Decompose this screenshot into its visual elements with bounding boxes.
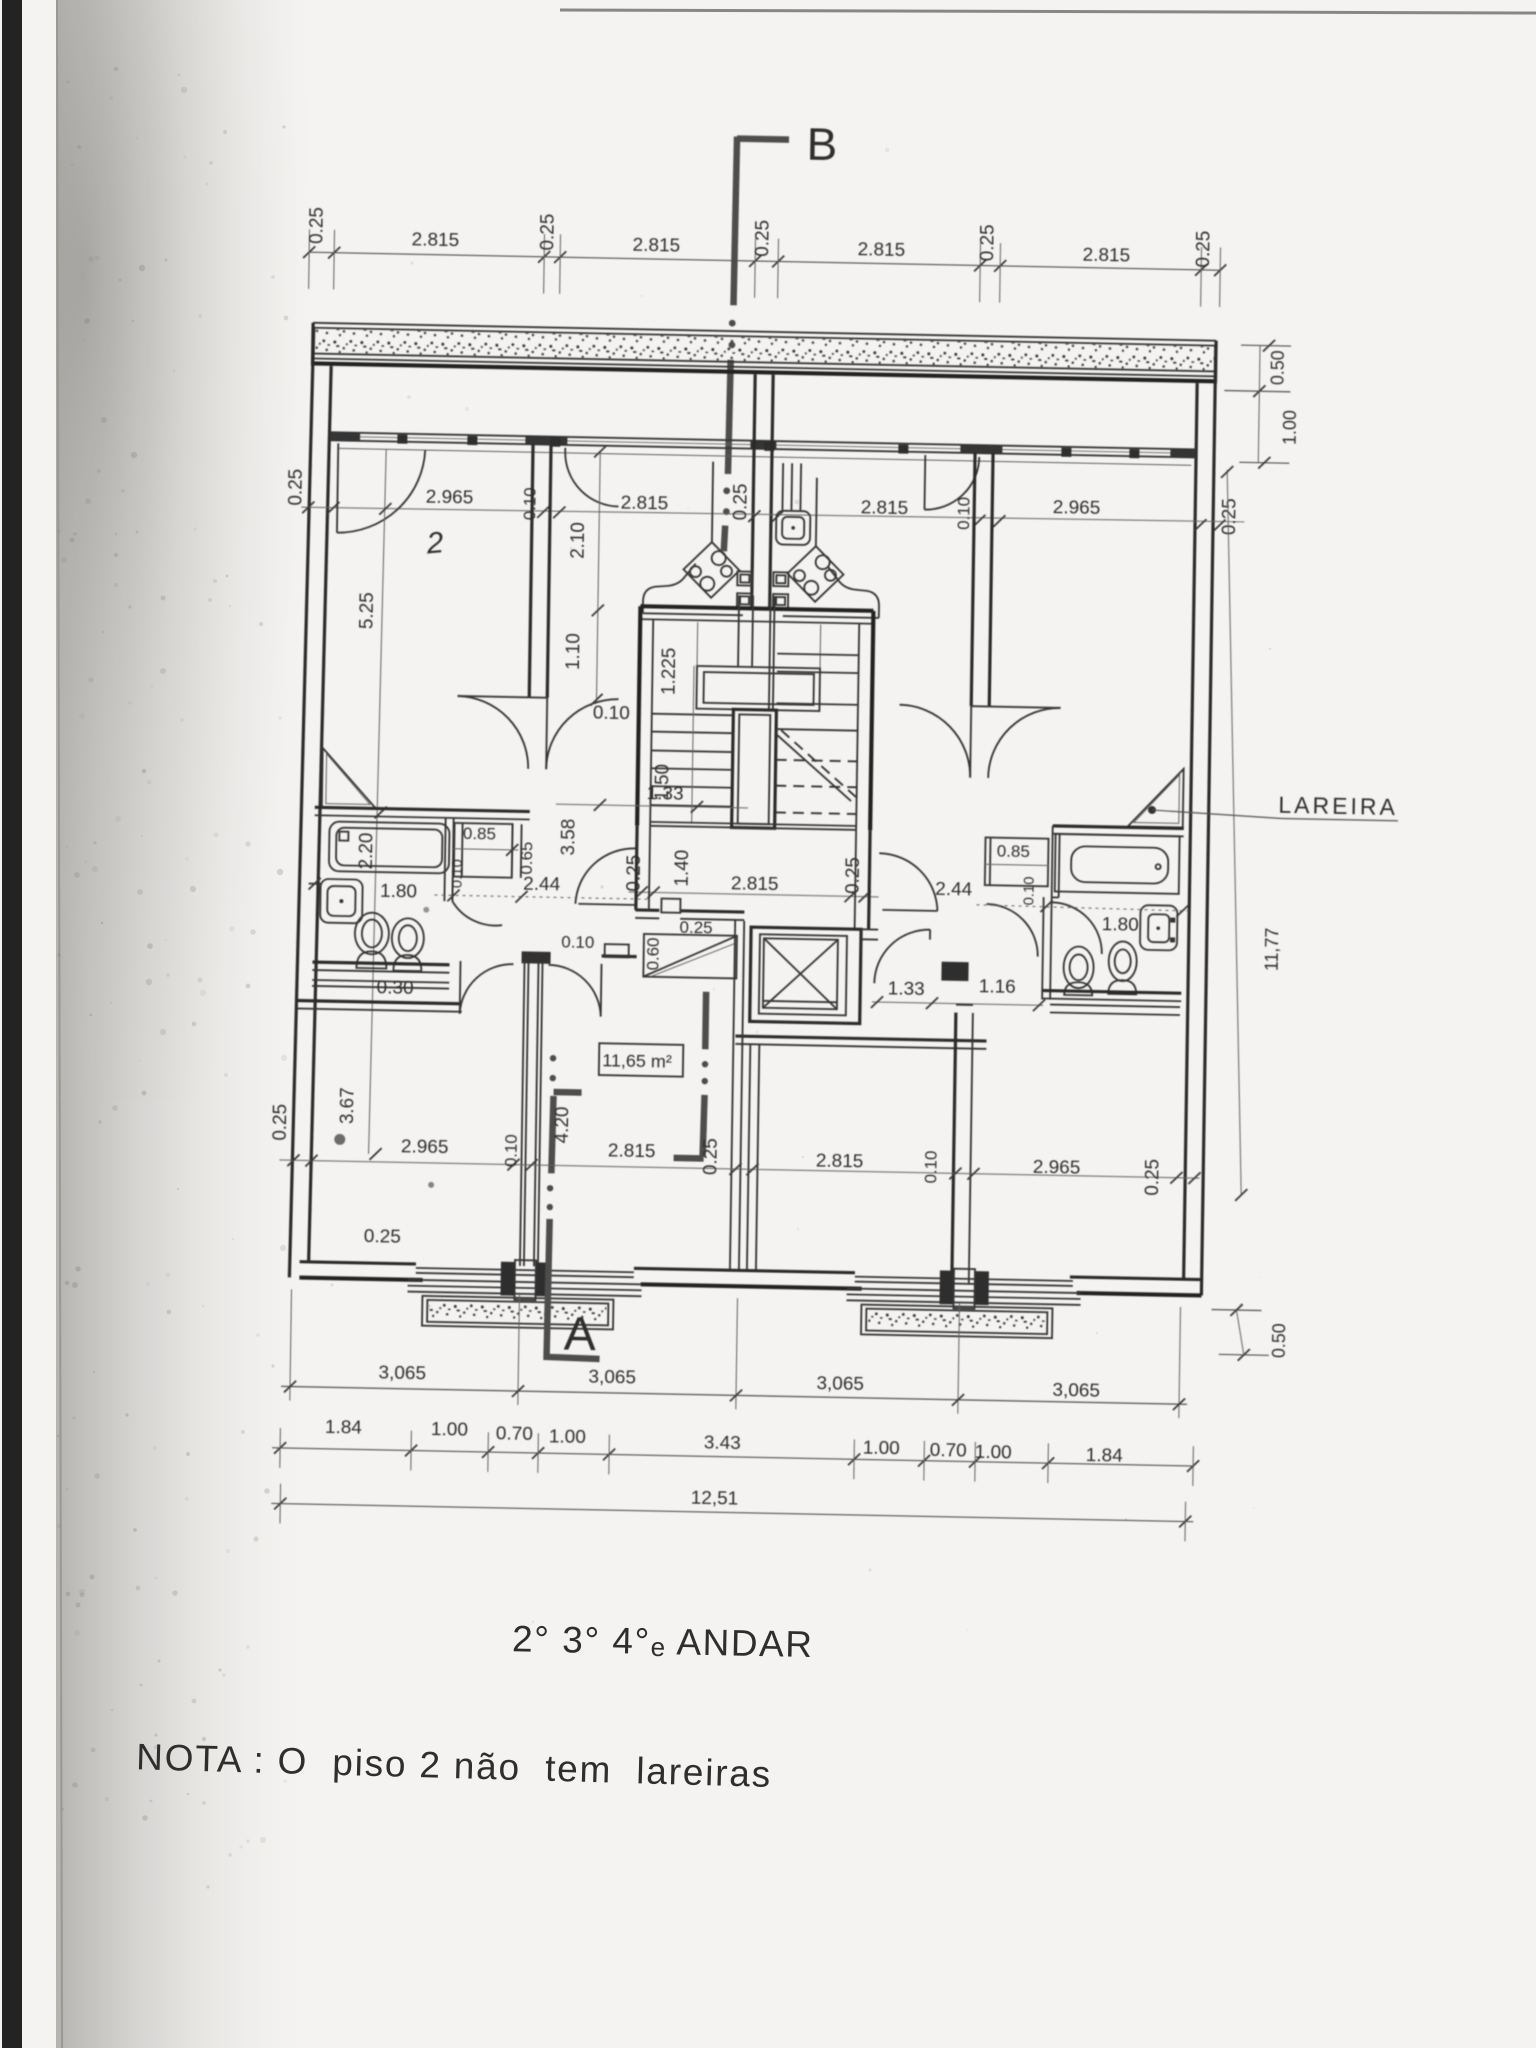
svg-text:1.33: 1.33 [646,783,683,805]
svg-text:0.30: 0.30 [376,977,413,999]
svg-text:2.965: 2.965 [1033,1157,1081,1179]
svg-text:0.10: 0.10 [921,1150,941,1183]
svg-text:1.84: 1.84 [1086,1445,1123,1467]
svg-text:2.44: 2.44 [523,874,560,896]
svg-text:2.815: 2.815 [731,873,779,895]
svg-text:0.10: 0.10 [520,487,540,520]
svg-text:12,51: 12,51 [691,1488,739,1510]
svg-text:0.60: 0.60 [643,937,663,970]
svg-text:3.58: 3.58 [558,819,580,856]
svg-text:1.16: 1.16 [979,976,1016,998]
svg-text:2.965: 2.965 [1053,497,1101,519]
svg-text:0.10: 0.10 [501,1134,521,1167]
svg-text:0.65: 0.65 [517,842,537,875]
svg-text:0.10: 0.10 [593,703,630,725]
svg-text:1.225: 1.225 [659,648,681,696]
svg-text:1.80: 1.80 [380,881,417,903]
svg-text:0.50: 0.50 [1267,350,1288,385]
svg-text:2.815: 2.815 [1082,245,1130,267]
svg-text:0.70: 0.70 [930,1440,967,1462]
svg-text:0.25: 0.25 [364,1226,401,1248]
svg-text:1.40: 1.40 [672,850,694,887]
svg-text:0.25: 0.25 [1142,1159,1164,1196]
svg-text:11,77: 11,77 [1262,927,1283,971]
svg-text:5.25: 5.25 [356,592,378,629]
svg-text:0.10: 0.10 [1020,876,1037,905]
svg-text:3,065: 3,065 [1052,1380,1100,1402]
svg-text:0.25: 0.25 [624,855,646,892]
svg-text:0.25: 0.25 [977,224,999,261]
svg-text:1.80: 1.80 [1102,914,1139,936]
svg-text:1.33: 1.33 [888,978,925,1000]
svg-text:0.25: 0.25 [306,207,328,244]
svg-text:2.965: 2.965 [401,1137,449,1159]
svg-text:2.10: 2.10 [568,522,590,559]
svg-text:3.67: 3.67 [337,1087,359,1124]
svg-text:11,65 m²: 11,65 m² [602,1050,672,1071]
svg-text:3,065: 3,065 [816,1373,864,1395]
svg-text:0.10: 0.10 [954,497,974,530]
svg-text:3,065: 3,065 [378,1362,426,1384]
svg-text:0.10: 0.10 [561,932,594,952]
svg-text:2.815: 2.815 [861,497,909,519]
svg-text:0.25: 0.25 [843,857,865,894]
svg-text:0.50: 0.50 [1269,1323,1290,1358]
svg-text:0.25: 0.25 [1193,231,1215,268]
svg-text:2.815: 2.815 [857,239,905,261]
svg-text:2.815: 2.815 [816,1151,864,1173]
svg-text:0.10: 0.10 [449,859,466,888]
svg-text:2.20: 2.20 [356,832,378,869]
svg-text:0.25: 0.25 [537,214,559,251]
svg-text:0.25: 0.25 [700,1138,722,1175]
svg-text:4.20: 4.20 [552,1106,574,1143]
svg-text:B: B [806,119,837,170]
svg-text:2.815: 2.815 [632,235,680,257]
svg-text:2.44: 2.44 [935,879,972,901]
svg-text:0.25: 0.25 [1219,498,1241,535]
svg-text:1.00: 1.00 [863,1438,900,1460]
svg-text:0.85: 0.85 [997,842,1030,862]
svg-text:3.43: 3.43 [704,1432,741,1454]
svg-text:1.00: 1.00 [431,1419,468,1441]
svg-text:0.25: 0.25 [270,1104,292,1141]
svg-text:A: A [564,1307,597,1360]
svg-text:2.965: 2.965 [426,487,474,509]
svg-text:1.84: 1.84 [325,1417,362,1439]
svg-text:1.00: 1.00 [1279,410,1300,445]
svg-text:0.85: 0.85 [463,824,496,844]
svg-text:1.00: 1.00 [549,1426,586,1448]
svg-text:3,065: 3,065 [588,1367,636,1389]
svg-text:0.25: 0.25 [285,469,307,506]
svg-text:1.10: 1.10 [563,633,585,670]
svg-text:2.815: 2.815 [411,229,459,251]
svg-text:1.00: 1.00 [975,1442,1012,1464]
svg-text:0.25: 0.25 [679,918,712,938]
svg-text:0.25: 0.25 [752,220,774,257]
svg-text:LAREIRA: LAREIRA [1278,792,1398,820]
svg-text:2.815: 2.815 [608,1141,656,1163]
svg-text:2: 2 [424,526,445,560]
svg-text:0.70: 0.70 [496,1423,533,1445]
svg-text:2.815: 2.815 [621,493,669,515]
svg-text:0.25: 0.25 [730,483,752,520]
